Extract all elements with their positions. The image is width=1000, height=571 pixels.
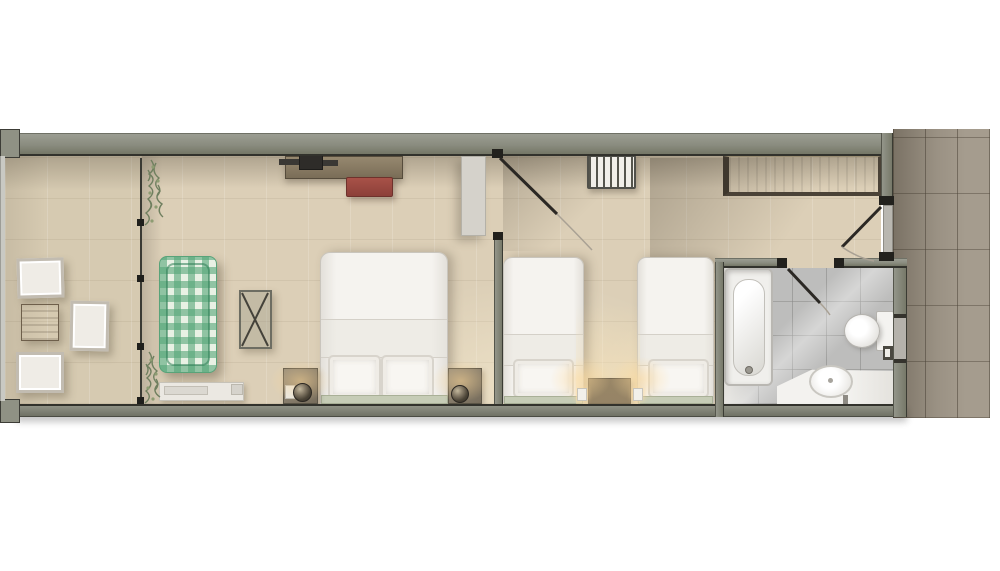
ac-unit-panel — [231, 384, 243, 395]
sink-drain-icon — [828, 378, 833, 383]
entry-door-panel — [883, 205, 893, 258]
balcony-armchair — [70, 301, 110, 352]
balcony-railing — [0, 156, 5, 401]
gingham-daybed — [159, 256, 217, 373]
bathroom-wall-left-segment — [715, 258, 786, 268]
tv-soundbar-left — [279, 159, 299, 165]
toilet-paper-holder-icon — [883, 346, 893, 360]
bathroom-wall-vertical — [715, 262, 724, 417]
door-jamb — [777, 258, 787, 268]
lamp-glow — [576, 285, 640, 405]
toilet-bowl — [844, 314, 880, 348]
tall-closet — [461, 156, 486, 236]
table-lamp — [293, 383, 312, 402]
door-jamb — [493, 232, 503, 240]
door-jamb — [492, 149, 503, 158]
balcony-side-table — [21, 304, 59, 341]
pilaster-bottom-left — [0, 399, 20, 423]
ac-unit-grill — [164, 386, 208, 395]
radiator — [587, 155, 636, 189]
wardrobe — [723, 156, 881, 196]
pilaster-top-left — [0, 129, 20, 158]
bedroom-partition-wall — [494, 236, 503, 404]
balcony-armchair — [16, 257, 64, 298]
balcony-armchair — [16, 352, 64, 393]
tv-soundbar-right — [323, 160, 338, 166]
table-lamp — [451, 385, 469, 403]
tub-faucet-icon — [745, 366, 753, 374]
door-jamb — [879, 252, 894, 261]
bathroom-wall-right-segment — [835, 258, 907, 268]
door-jamb — [879, 196, 894, 205]
bathroom-wall-niche — [894, 314, 906, 363]
bathtub-basin — [733, 279, 765, 376]
red-bench — [346, 177, 393, 197]
small-lamp — [577, 388, 587, 401]
wall-right-upper — [881, 133, 893, 205]
wall-top — [6, 133, 893, 156]
door-jamb — [834, 258, 844, 268]
wall-bottom — [16, 404, 907, 417]
floor-plan — [0, 0, 1000, 571]
luggage-rack — [239, 290, 272, 349]
tv-icon — [299, 155, 323, 170]
small-lamp — [633, 388, 643, 401]
exterior-corridor-tiles — [893, 129, 990, 418]
